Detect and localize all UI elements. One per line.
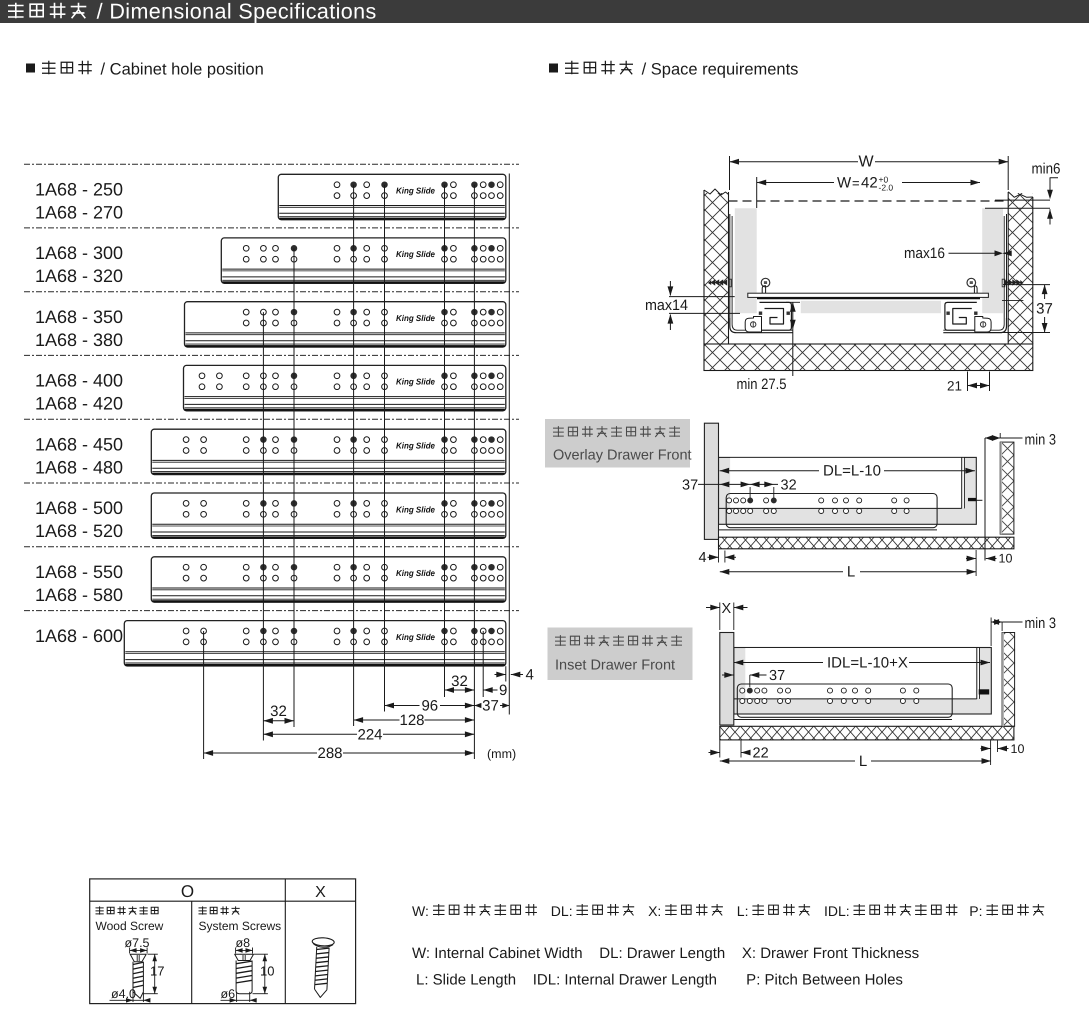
svg-text:37: 37: [682, 477, 698, 493]
svg-text:min 3: min 3: [1025, 615, 1057, 632]
svg-text:10: 10: [1011, 742, 1025, 756]
svg-text:1A68 - 250: 1A68 - 250: [35, 180, 123, 200]
svg-text:System Screws: System Screws: [199, 919, 282, 933]
svg-text:42: 42: [861, 175, 878, 192]
svg-text:min 27.5: min 27.5: [737, 376, 787, 393]
svg-text:W:: W:: [412, 903, 429, 919]
svg-text:max14: max14: [645, 297, 688, 314]
svg-text:IDL:: IDL:: [824, 903, 850, 919]
svg-text:max16: max16: [904, 245, 945, 262]
svg-text:King Slide: King Slide: [396, 186, 435, 196]
svg-text:32: 32: [781, 477, 797, 493]
svg-text:min6: min6: [1032, 161, 1061, 178]
svg-text:King Slide: King Slide: [396, 441, 435, 451]
svg-text:L: L: [847, 564, 855, 581]
svg-text:1A68 - 380: 1A68 - 380: [35, 330, 123, 350]
svg-text:32: 32: [270, 703, 287, 720]
svg-text:1A68 - 400: 1A68 - 400: [35, 371, 123, 391]
svg-text:O: O: [181, 882, 194, 901]
svg-text:/ Space requirements: / Space requirements: [642, 61, 799, 79]
svg-text:1A68 - 520: 1A68 - 520: [35, 521, 123, 541]
svg-text:X:: X:: [648, 903, 661, 919]
svg-text:1A68 - 300: 1A68 - 300: [35, 243, 123, 263]
svg-text:Overlay Drawer Front: Overlay Drawer Front: [553, 448, 692, 464]
svg-text:4: 4: [699, 550, 707, 566]
svg-text:288: 288: [317, 745, 342, 762]
svg-text:L: Slide Length IDL: Intern: L: Slide Length IDL: Internal Drawer Len…: [416, 972, 903, 989]
svg-text:W: Internal Cabinet Width D: W: Internal Cabinet Width DL: Drawer Len…: [412, 945, 919, 962]
svg-text:1A68 - 270: 1A68 - 270: [35, 203, 123, 223]
svg-text:37: 37: [1036, 301, 1053, 318]
svg-text:King Slide: King Slide: [396, 568, 435, 578]
svg-text:37: 37: [769, 668, 785, 684]
svg-text:1A68 - 420: 1A68 - 420: [35, 394, 123, 414]
svg-text:21: 21: [947, 379, 962, 394]
svg-text:ø8: ø8: [236, 936, 251, 950]
svg-text:ø6: ø6: [221, 987, 236, 1001]
svg-text:/ Dimensional Specifications: / Dimensional Specifications: [97, 0, 377, 24]
svg-text:X: X: [722, 601, 732, 617]
svg-text:1A68 - 580: 1A68 - 580: [35, 585, 123, 605]
svg-text:IDL=L-10+X: IDL=L-10+X: [827, 654, 908, 671]
svg-text:/ Cabinet hole position: / Cabinet hole position: [101, 61, 264, 79]
svg-text:King Slide: King Slide: [396, 249, 435, 259]
svg-text:1A68 - 500: 1A68 - 500: [35, 498, 123, 518]
svg-text:1A68 - 350: 1A68 - 350: [35, 307, 123, 327]
svg-text:ø4.0: ø4.0: [111, 987, 136, 1001]
svg-text:1A68 - 550: 1A68 - 550: [35, 562, 123, 582]
svg-text:-2.0: -2.0: [879, 183, 894, 193]
svg-text:min 3: min 3: [1025, 432, 1057, 449]
svg-text:1A68 - 320: 1A68 - 320: [35, 266, 123, 286]
svg-text:X: X: [315, 884, 326, 901]
svg-text:King Slide: King Slide: [396, 632, 435, 642]
svg-text:L:: L:: [737, 903, 749, 919]
svg-text:King Slide: King Slide: [396, 504, 435, 514]
svg-text:22: 22: [753, 745, 769, 761]
svg-text:ø7.5: ø7.5: [125, 936, 150, 950]
svg-text:(mm): (mm): [487, 747, 516, 761]
svg-text:10: 10: [260, 964, 274, 979]
svg-text:1A68 - 600: 1A68 - 600: [35, 626, 123, 646]
svg-text:W: W: [837, 175, 852, 192]
svg-text:King Slide: King Slide: [396, 313, 435, 323]
svg-text:W: W: [858, 154, 874, 171]
svg-text:Inset Drawer Front: Inset Drawer Front: [555, 658, 675, 674]
svg-text:128: 128: [399, 712, 424, 729]
svg-text:9: 9: [499, 682, 507, 699]
svg-text:10: 10: [999, 552, 1013, 566]
svg-text:1A68 - 450: 1A68 - 450: [35, 434, 123, 454]
svg-text:37: 37: [482, 698, 499, 715]
svg-text:4: 4: [526, 667, 534, 684]
svg-text:1A68 - 480: 1A68 - 480: [35, 457, 123, 477]
svg-text:=: =: [852, 176, 860, 191]
svg-text:Wood Screw: Wood Screw: [96, 919, 164, 933]
svg-text:DL=L-10: DL=L-10: [823, 463, 881, 480]
svg-text:King Slide: King Slide: [396, 377, 435, 387]
svg-text:32: 32: [451, 673, 468, 690]
svg-text:224: 224: [357, 726, 382, 743]
svg-text:L: L: [859, 753, 867, 770]
svg-text:DL:: DL:: [551, 903, 573, 919]
svg-text:P:: P:: [969, 903, 982, 919]
svg-text:17: 17: [150, 964, 164, 979]
